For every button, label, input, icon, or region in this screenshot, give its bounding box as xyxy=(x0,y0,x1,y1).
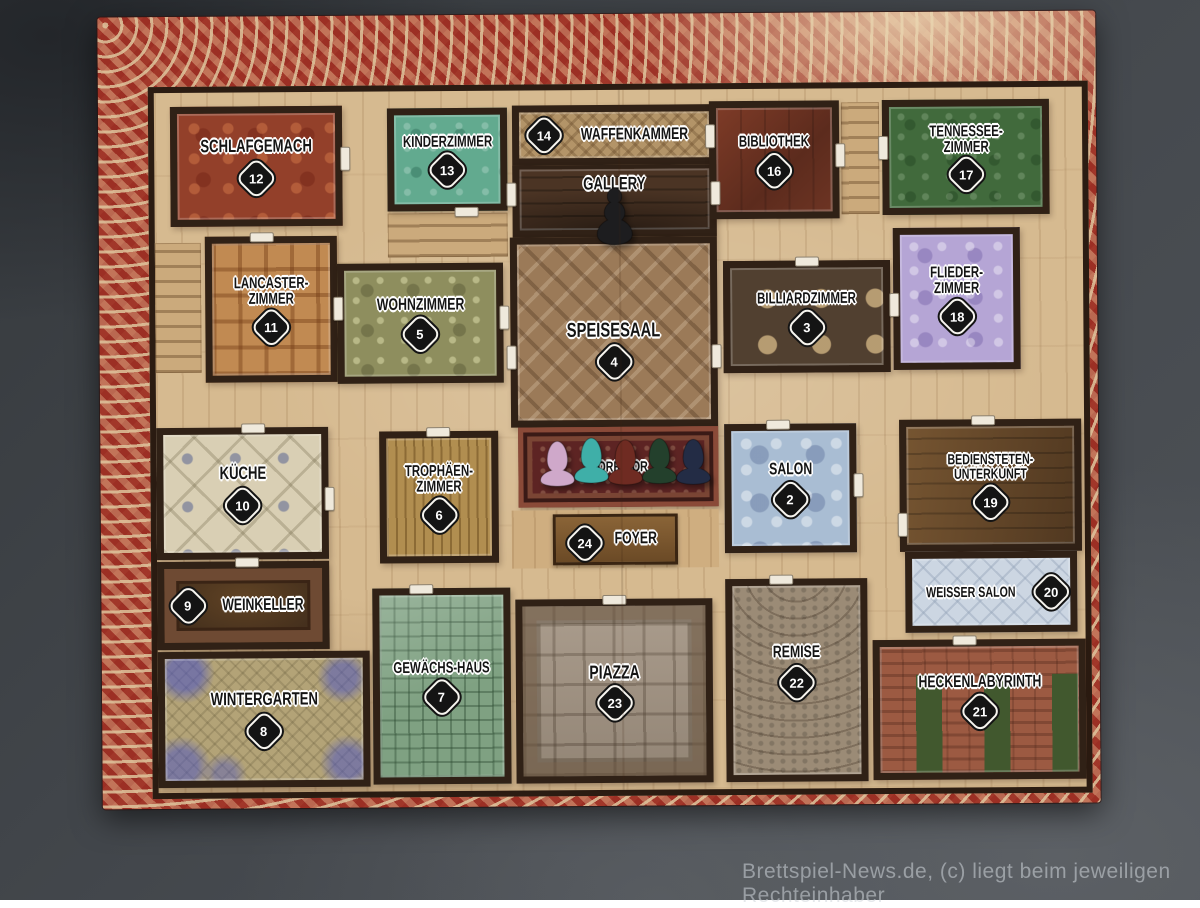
room-piazza: Piazza 23 xyxy=(515,598,713,783)
room-number-badge: 12 xyxy=(235,157,277,199)
room-flieder-zimmer: Flieder-Zimmer 18 xyxy=(893,227,1021,370)
door-mark xyxy=(889,293,899,317)
room-number-badge: 16 xyxy=(753,149,795,191)
door-mark xyxy=(971,415,995,425)
room-label: Wintergarten xyxy=(210,691,317,710)
stairs xyxy=(155,243,202,373)
room-number-badge: 8 xyxy=(243,710,285,752)
room-number-badge: 24 xyxy=(563,521,605,563)
room-label: Speisesaal xyxy=(567,320,661,341)
room-label: Flieder-Zimmer xyxy=(910,264,1003,297)
door-mark xyxy=(795,256,819,266)
room-number-badge: 10 xyxy=(221,484,263,526)
door-mark xyxy=(235,557,259,567)
room-speisesaal: Speisesaal 4 xyxy=(510,236,718,427)
game-board: Schlafgemach 12 Kinderzimmer 13 14 Waffe… xyxy=(97,11,1101,810)
room-schlafgemach: Schlafgemach 12 xyxy=(170,106,343,227)
room-number-badge: 17 xyxy=(945,153,987,195)
room-remise: Remise 22 xyxy=(725,578,868,782)
door-mark xyxy=(953,635,977,645)
room-foyer: 24 Foyer xyxy=(512,509,719,568)
room-label: Piazza xyxy=(589,663,639,683)
stairs xyxy=(388,213,508,258)
room-number-badge: 7 xyxy=(421,676,463,718)
room-number-badge: 22 xyxy=(776,661,818,703)
room-number-badge: 2 xyxy=(769,478,811,520)
room-kueche: Küche 10 xyxy=(156,427,329,560)
room-label: Bediensteten-Unterkunft xyxy=(929,451,1052,482)
room-trophaeen-zimmer: Trophäen-Zimmer 6 xyxy=(379,431,499,564)
room-label: Waffenkammer xyxy=(580,126,687,144)
door-mark xyxy=(878,136,888,160)
door-mark xyxy=(898,513,908,537)
room-number-badge: 5 xyxy=(399,313,441,355)
door-mark xyxy=(712,344,722,368)
room-number-badge: 21 xyxy=(958,690,1000,732)
door-mark xyxy=(835,143,845,167)
room-salon: Salon 2 xyxy=(724,423,857,553)
door-mark xyxy=(705,124,715,148)
door-mark xyxy=(340,147,350,171)
room-number-badge: 13 xyxy=(426,149,468,191)
room-gewaechshaus: Gewächs-Haus 7 xyxy=(372,588,511,785)
door-mark xyxy=(602,595,626,605)
room-label: Wohnzimmer xyxy=(376,296,464,314)
room-number-badge: 4 xyxy=(593,340,635,382)
room-number-badge: 11 xyxy=(250,306,292,348)
door-mark xyxy=(853,473,863,497)
room-weisser-salon: Weisser Salon 20 xyxy=(905,551,1078,633)
room-label: Heckenlabyrinth xyxy=(918,673,1041,691)
room-label: Billiardzimmer xyxy=(757,290,856,307)
foyer-sign: 24 Foyer xyxy=(552,513,678,565)
door-mark xyxy=(333,297,343,321)
room-label: Trophäen-Zimmer xyxy=(396,462,482,495)
room-billiardzimmer: Billiardzimmer 3 xyxy=(723,260,891,373)
room-number-badge: 3 xyxy=(786,306,828,348)
room-label: Gewächs-Haus xyxy=(394,659,490,676)
room-label: Foyer xyxy=(614,530,657,547)
door-mark xyxy=(409,584,433,594)
stairs xyxy=(841,102,880,214)
room-number-badge: 18 xyxy=(936,295,978,337)
room-bediensteten-unterkunft: Bediensteten-Unterkunft 19 xyxy=(899,419,1082,552)
board-interior: Schlafgemach 12 Kinderzimmer 13 14 Waffe… xyxy=(148,81,1093,800)
watermark-text: Brettspiel-News.de, (c) liegt beim jewei… xyxy=(742,860,1200,908)
room-number-badge: 19 xyxy=(969,481,1011,523)
door-mark xyxy=(499,306,509,330)
room-label: Remise xyxy=(773,644,820,661)
door-mark xyxy=(250,232,274,242)
room-number-badge: 9 xyxy=(168,585,210,627)
room-label: Kinderzimmer xyxy=(402,133,491,150)
room-wintergarten: Wintergarten 8 xyxy=(158,651,371,788)
room-label: Weinkeller xyxy=(223,596,304,614)
room-bibliothek: Bibliothek 16 xyxy=(709,100,840,219)
door-mark xyxy=(241,423,265,433)
door-mark xyxy=(426,427,450,437)
room-weinkeller: 9 Weinkeller xyxy=(157,561,330,650)
room-waffenkammer: 14 Waffenkammer xyxy=(512,104,716,165)
doctor-lucky-pawn xyxy=(590,186,638,250)
room-kinderzimmer: Kinderzimmer 13 xyxy=(387,108,508,212)
room-tennessee-zimmer: Tennessee-Zimmer 17 xyxy=(882,99,1050,215)
room-label: Tennessee-Zimmer xyxy=(917,122,1014,155)
room-number-badge: 20 xyxy=(1030,570,1072,612)
room-number-badge: 23 xyxy=(593,682,635,724)
room-label: Bibliothek xyxy=(739,133,809,149)
room-label: Küche xyxy=(219,466,266,485)
player-pawn-navy xyxy=(672,436,714,488)
door-mark xyxy=(769,575,793,585)
room-number-badge: 6 xyxy=(418,494,460,536)
door-mark xyxy=(506,183,516,207)
door-mark xyxy=(710,181,720,205)
room-label: Schlafgemach xyxy=(200,138,312,157)
door-mark xyxy=(766,420,790,430)
room-label: Weisser Salon xyxy=(926,584,1016,599)
room-wohnzimmer: Wohnzimmer 5 xyxy=(337,263,504,384)
room-lancaster-zimmer: Lancaster-Zimmer 11 xyxy=(205,236,338,383)
door-mark xyxy=(507,346,517,370)
door-mark xyxy=(325,487,335,511)
room-label: Salon xyxy=(769,461,812,478)
door-mark xyxy=(455,207,479,217)
room-heckenlabyrinth: Heckenlabyrinth 21 xyxy=(873,639,1087,780)
room-label: Lancaster-Zimmer xyxy=(223,274,320,307)
room-number-badge: 14 xyxy=(522,114,564,156)
